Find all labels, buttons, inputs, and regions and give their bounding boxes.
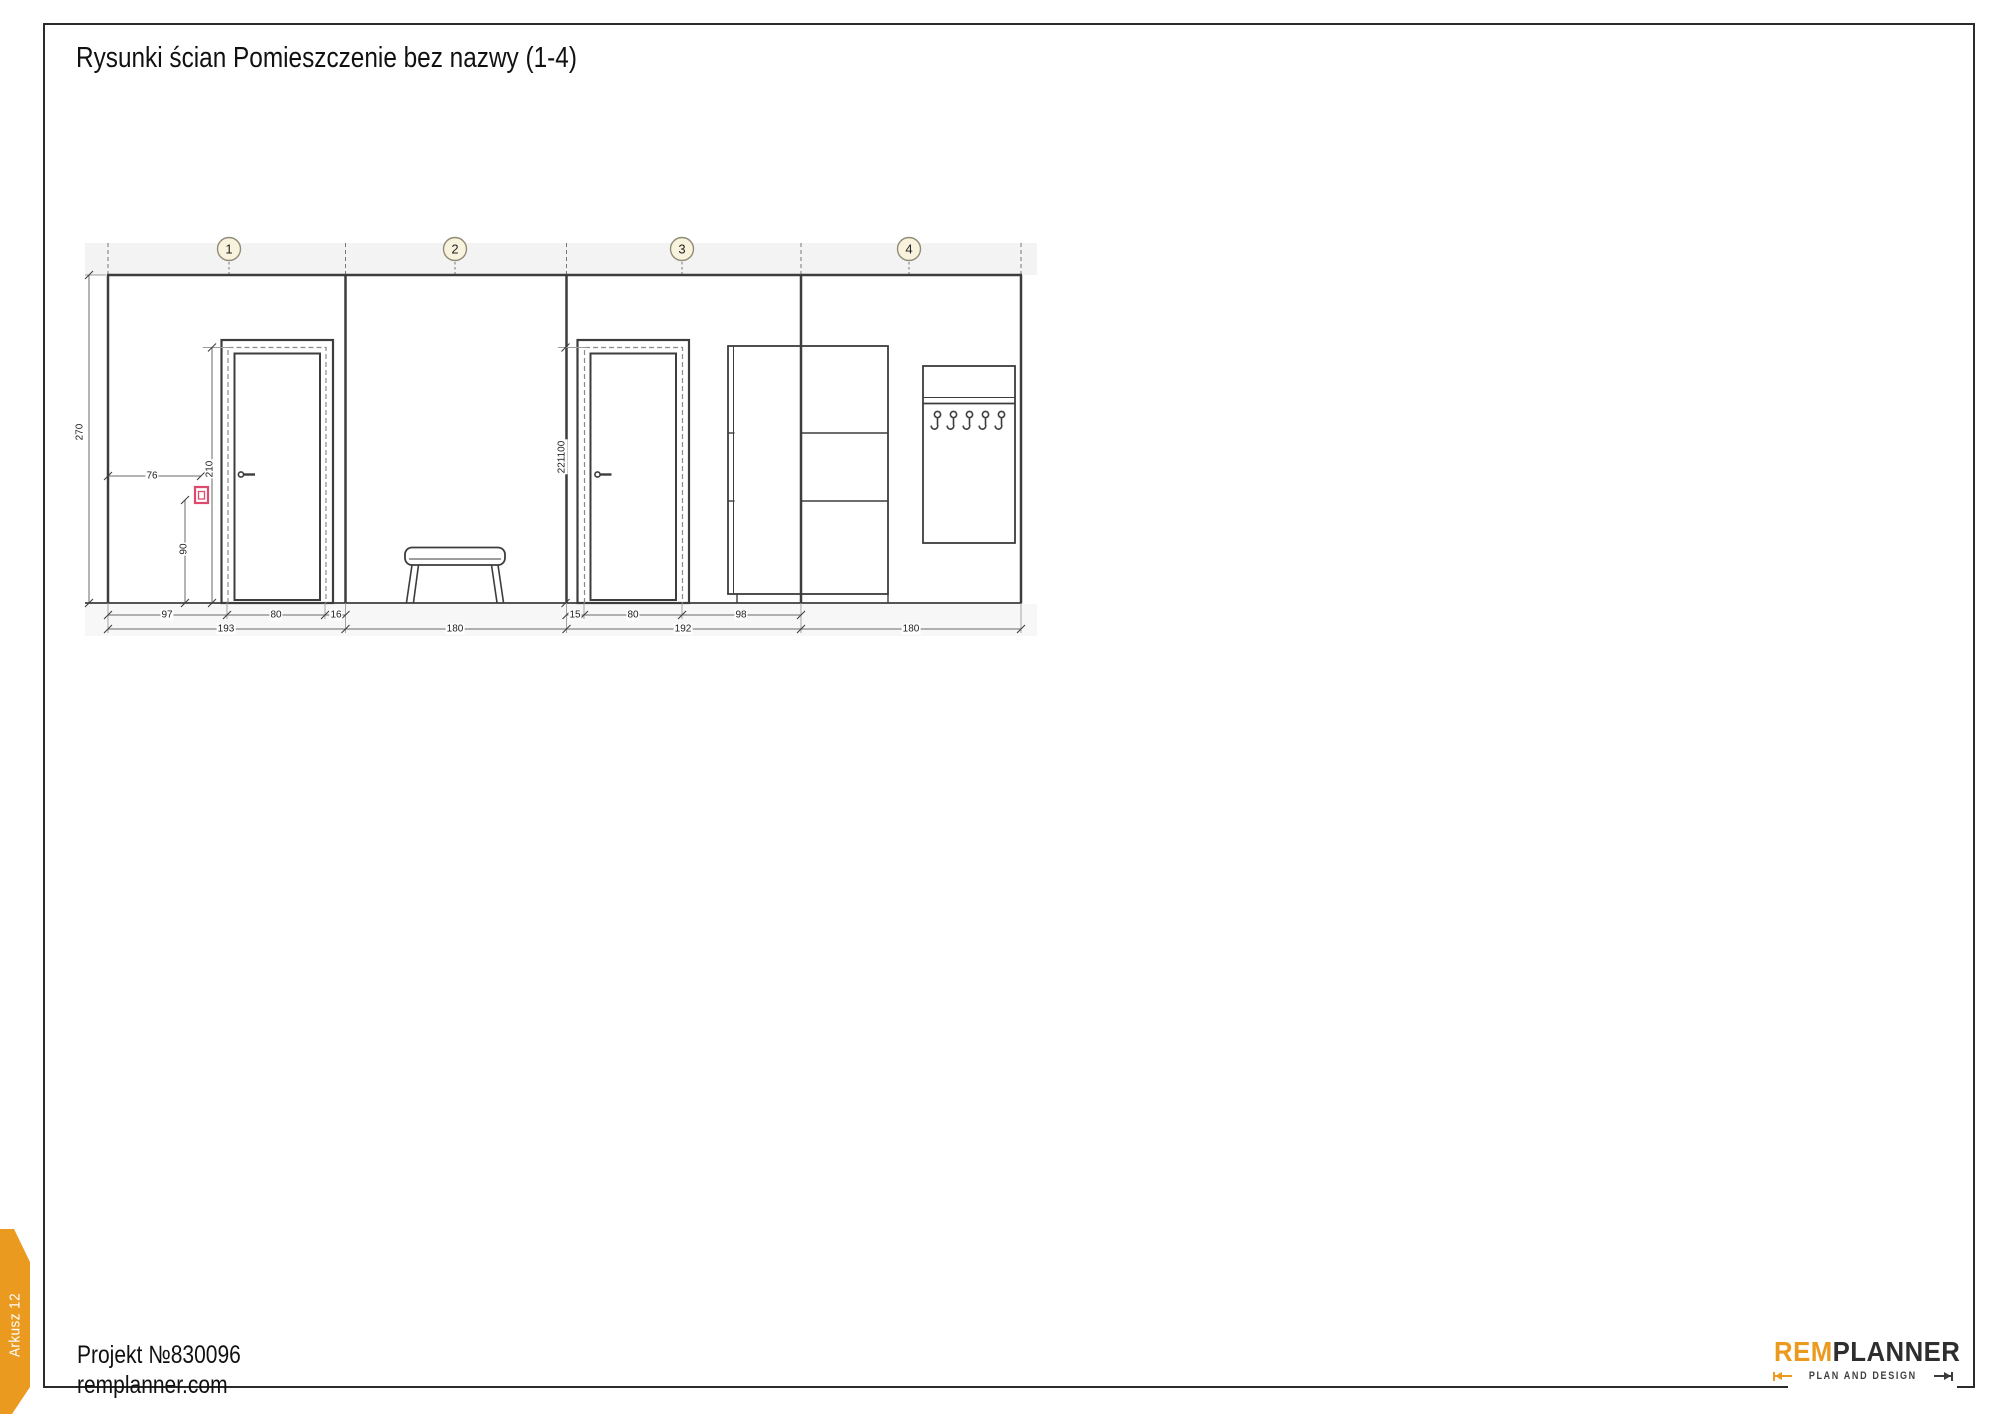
dimension-ticks — [85, 271, 1025, 633]
wall-outline — [85, 275, 1022, 603]
dimension-lines — [89, 275, 1021, 629]
brand-tagline-row: PLAN AND DESIGN — [1774, 1370, 1952, 1382]
dim-wall1-total: 193 — [217, 624, 236, 635]
remplanner-logo: REMPLANNER PLAN AND DESIGN — [1774, 1337, 1964, 1382]
dim-wall1-seg3: 16 — [329, 610, 342, 621]
dim-wall3-total: 192 — [674, 624, 693, 635]
tagline-dimension-line-left — [1774, 1375, 1792, 1377]
door-3-handle — [595, 472, 612, 477]
project-number: Projekt №830096 — [77, 1341, 241, 1370]
bench — [405, 548, 505, 603]
dim-wall3-seg3: 98 — [734, 610, 747, 621]
door-1 — [222, 340, 334, 603]
brand-planner: PLANNER — [1833, 1336, 1961, 1367]
section-label-2: 2 — [444, 242, 466, 257]
wardrobe — [728, 346, 888, 603]
coat-hooks — [931, 411, 1004, 429]
dim-door3-height: 221100 — [557, 440, 568, 475]
dim-wall3-seg1: 15 — [568, 610, 581, 621]
brand-rem: REM — [1774, 1336, 1833, 1367]
door-3 — [578, 340, 690, 603]
section-label-3: 3 — [671, 242, 693, 257]
brand-tagline: PLAN AND DESIGN — [1809, 1370, 1917, 1382]
coat-hook-panel — [923, 366, 1015, 543]
extension-lines — [85, 275, 1021, 633]
door-1-handle — [238, 472, 255, 477]
dim-door1-height: 210 — [205, 460, 216, 479]
section-label-1: 1 — [218, 242, 240, 257]
website-url: remplanner.com — [77, 1371, 228, 1400]
dim-wall2-total: 180 — [446, 624, 465, 635]
dim-wall4-total: 180 — [902, 624, 921, 635]
dim-wall3-seg2: 80 — [626, 610, 639, 621]
dim-wall-height: 270 — [75, 423, 86, 442]
dim-socket-height: 90 — [179, 542, 190, 555]
dim-socket-offset: 76 — [145, 471, 158, 482]
dim-wall1-seg1: 97 — [160, 610, 173, 621]
sheet-tab-label: Arkusz 12 — [7, 1293, 24, 1357]
dim-wall1-seg2: 80 — [269, 610, 282, 621]
brand-wordmark: REMPLANNER — [1774, 1337, 1949, 1367]
section-label-4: 4 — [898, 242, 920, 257]
tagline-dimension-line-right — [1934, 1375, 1952, 1377]
sheet-page: Rysunki ścian Pomieszczenie bez nazwy (1… — [0, 0, 2000, 1414]
wall-elevation-drawing — [0, 0, 2000, 1414]
sheet-tab-arkusz[interactable]: Arkusz 12 — [0, 1229, 30, 1414]
socket-symbol — [195, 487, 208, 503]
